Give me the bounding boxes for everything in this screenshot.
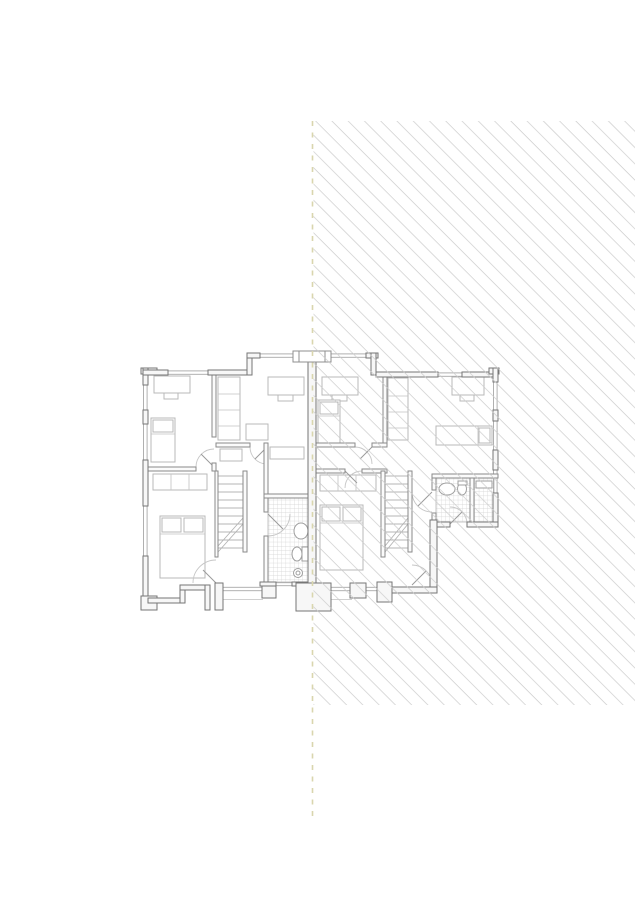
interior-walls-shape xyxy=(243,471,247,552)
exterior-walls-shape xyxy=(260,582,276,586)
bathroom-fixtures-shape xyxy=(294,523,308,539)
exterior-walls-shape xyxy=(148,598,180,603)
neighbour-unit-hatch xyxy=(314,121,635,705)
furniture-shape xyxy=(162,518,181,532)
furniture-shape xyxy=(246,424,268,440)
interior-walls-shape xyxy=(264,498,268,512)
furniture-shape xyxy=(220,449,242,461)
exterior-walls-shape xyxy=(215,583,223,610)
interior-walls-shape xyxy=(212,372,216,437)
windows-shape xyxy=(168,371,208,374)
furniture-shape xyxy=(184,518,203,532)
tile-floors-shape xyxy=(268,498,308,582)
interior-walls-shape xyxy=(143,467,196,471)
furniture-shape xyxy=(278,395,293,401)
windows-shape xyxy=(144,506,148,556)
neighbour-unit-hatch-shape xyxy=(314,121,635,705)
furniture-shape xyxy=(270,447,304,459)
furniture-shape xyxy=(154,376,190,393)
interior-walls-shape xyxy=(215,471,218,557)
windows-shape xyxy=(276,583,292,586)
drawing-sheet xyxy=(0,0,635,900)
windows-shape xyxy=(144,385,148,410)
exterior-walls-shape xyxy=(143,370,168,375)
interior-walls-shape xyxy=(212,463,216,471)
bathroom-fixtures-shape xyxy=(292,547,302,561)
interior-walls-shape xyxy=(264,443,268,498)
interior-walls-shape xyxy=(264,494,308,498)
bathroom-fixtures-shape xyxy=(302,547,308,561)
floor-plan-canvas xyxy=(0,0,635,900)
windows-shape xyxy=(223,587,262,590)
windows-shape xyxy=(260,354,293,357)
furniture-shape xyxy=(164,393,178,399)
exterior-walls-shape xyxy=(143,460,148,506)
furniture-shape xyxy=(268,377,304,395)
exterior-walls-shape xyxy=(247,353,260,358)
windows-shape xyxy=(144,424,148,460)
furniture-shape xyxy=(153,474,207,490)
furniture-shape xyxy=(218,377,240,440)
interior-walls-shape xyxy=(216,443,250,447)
floor-plan xyxy=(141,121,635,822)
furniture-shape xyxy=(153,420,173,432)
exterior-walls-shape xyxy=(208,370,252,375)
bathroom-fixtures-shape xyxy=(296,571,300,575)
exterior-walls-shape xyxy=(205,585,210,610)
exterior-walls-shape xyxy=(143,410,148,424)
